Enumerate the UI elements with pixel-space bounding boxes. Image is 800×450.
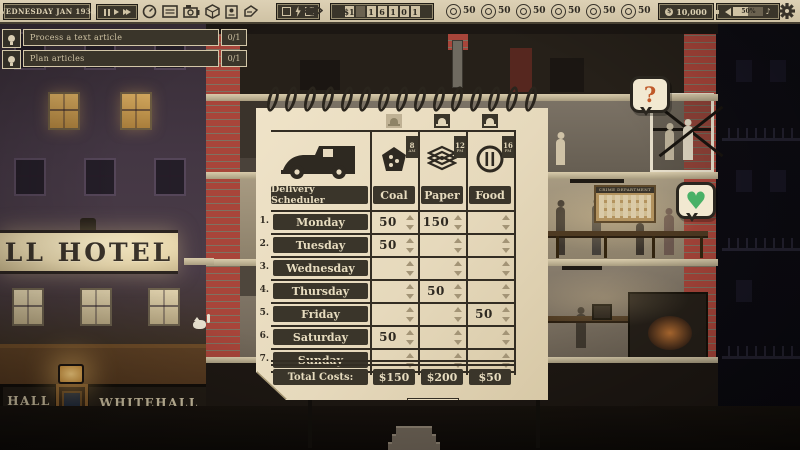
fast-forward-icon[interactable] <box>123 9 131 15</box>
typewriter <box>592 304 612 320</box>
hotel-sign-text: LL HOTEL <box>5 238 174 267</box>
circulation-counter: $1 1 6 1 0 1 <box>330 3 434 20</box>
fire-escape-rail <box>722 356 800 359</box>
camera-icon[interactable] <box>183 4 200 18</box>
paper-cell: 150 <box>418 213 466 232</box>
row-number: 5. <box>257 308 269 318</box>
task-row[interactable]: Plan articles 0/1 <box>2 50 247 69</box>
quantity-stepper[interactable] <box>405 215 414 230</box>
stat-value: 50 <box>463 6 476 16</box>
stepper-down-icon[interactable] <box>502 294 510 299</box>
stepper-down-icon[interactable] <box>406 248 414 253</box>
desk-leg <box>556 236 559 258</box>
delivery-ampm: AM <box>409 149 416 153</box>
stepper-up-icon[interactable] <box>406 330 414 335</box>
cell-value: 150 <box>422 215 450 229</box>
spiral-binding <box>268 86 536 120</box>
stat-item: 50 <box>446 4 478 19</box>
stepper-up-icon[interactable] <box>502 330 510 335</box>
stat-value: 50 <box>498 6 511 16</box>
coal-cell: 50 <box>370 328 418 347</box>
money-display: $ 10,000 <box>658 3 714 20</box>
crime-department-board: CRIME DEPARTMENT <box>594 185 656 223</box>
id-card-icon[interactable] <box>225 4 238 19</box>
package-icon[interactable] <box>205 4 220 19</box>
quantity-stepper[interactable] <box>501 307 510 322</box>
money-icon: $ <box>665 8 673 16</box>
table-top-rule <box>271 130 516 132</box>
header-labels-row: Delivery Scheduler Coal Paper Food <box>271 186 516 205</box>
quantity-stepper[interactable] <box>453 330 462 345</box>
binding-ring <box>357 85 374 113</box>
food-cell <box>466 213 514 232</box>
person-in-elevator <box>665 130 674 160</box>
desk-leg <box>604 236 607 258</box>
printing-press <box>628 292 708 360</box>
stepper-up-icon[interactable] <box>454 353 462 358</box>
row-number: 1. <box>257 216 269 226</box>
task-progress: 0/1 <box>221 50 247 67</box>
binding-ring <box>375 85 392 113</box>
task-label[interactable]: Process a text article <box>23 29 219 46</box>
stepper-down-icon[interactable] <box>454 271 462 276</box>
stepper-down-icon[interactable] <box>454 225 462 230</box>
dark-building <box>716 0 800 450</box>
vent-pipe <box>452 40 463 88</box>
stepper-up-icon[interactable] <box>406 284 414 289</box>
counter-digit: 1 <box>411 6 420 17</box>
paper-delivery-time-badge: 12 PM <box>454 136 466 158</box>
stat-item: 50 <box>551 4 583 19</box>
stepper-up-icon[interactable] <box>454 238 462 243</box>
delivery-truck-icon <box>279 138 357 180</box>
hotel-window-lit <box>80 288 112 326</box>
stepper-down-icon[interactable] <box>406 317 414 322</box>
delivery-ampm: PM <box>505 149 512 153</box>
task-row[interactable]: Process a text article 0/1 <box>2 29 247 48</box>
row-number: 4. <box>257 285 269 295</box>
counter-prefix: $1 <box>345 6 354 17</box>
cell-value: 50 <box>374 238 402 252</box>
row-number: 3. <box>257 262 269 272</box>
demographic-stats: 50 50 50 50 50 50 <box>446 2 653 20</box>
header-icons-row: 8 AM 12 PM 16 PM <box>271 134 516 184</box>
stepper-down-icon[interactable] <box>454 294 462 299</box>
scheduler-title: Delivery Scheduler <box>271 186 368 204</box>
food-column-header: Food <box>469 186 511 204</box>
binding-ring <box>412 85 429 113</box>
delivery-ampm: PM <box>457 149 464 153</box>
delivery-scheduler-panel: 8 AM 12 PM 16 PM Delivery Scheduler C <box>256 86 550 402</box>
sign-lamp <box>80 218 96 230</box>
food-total: $50 <box>469 369 511 385</box>
heart-icon: ♥ <box>685 189 707 213</box>
ceiling-lamp <box>570 179 624 183</box>
stat-item: 50 <box>586 4 618 19</box>
quantity-stepper[interactable] <box>453 307 462 322</box>
lightning-icon <box>294 6 302 17</box>
lightbulb-icon <box>2 29 21 48</box>
quantity-stepper[interactable] <box>501 238 510 253</box>
task-list: Process a text article 0/1 Plan articles… <box>2 29 247 71</box>
row-number: 2. <box>257 239 269 249</box>
stepper-up-icon[interactable] <box>406 261 414 266</box>
hotel-window-lit <box>120 92 152 130</box>
day-label: Tuesday <box>273 237 368 253</box>
table-row-wednesday: 3. Wednesday <box>271 258 516 281</box>
crime-board-title: CRIME DEPARTMENT <box>596 187 654 193</box>
task-progress: 0/1 <box>221 29 247 46</box>
coal-column-header: Coal <box>373 186 415 204</box>
paper-cell <box>418 328 466 347</box>
desk-leg <box>652 236 655 258</box>
binding-ring <box>265 85 282 113</box>
volume-bar[interactable]: 50% <box>733 7 763 16</box>
counter-digit: 1 <box>389 6 398 17</box>
stepper-down-icon[interactable] <box>502 340 510 345</box>
food-cell <box>466 282 514 301</box>
stepper-up-icon[interactable] <box>406 307 414 312</box>
gauge-icon[interactable] <box>142 4 157 19</box>
paper-column-header: Paper <box>421 186 463 204</box>
binding-ring <box>394 85 411 113</box>
stepper-up-icon[interactable] <box>454 261 462 266</box>
food-cell <box>466 328 514 347</box>
stepper-up-icon[interactable] <box>406 238 414 243</box>
coal-delivery-time-badge: 8 AM <box>406 136 418 158</box>
stat-emblem-icon <box>481 4 496 19</box>
stat-item: 50 <box>621 4 653 19</box>
quantity-stepper[interactable] <box>501 284 510 299</box>
coal-cell <box>370 282 418 301</box>
eye-icon[interactable] <box>303 4 323 17</box>
stepper-up-icon[interactable] <box>502 307 510 312</box>
binding-ring <box>486 85 503 113</box>
table-row-tuesday: 2. Tuesday 50 <box>271 235 516 258</box>
day-label: Friday <box>273 306 368 322</box>
binding-ring <box>320 85 337 113</box>
fire-escape-rail <box>722 138 800 141</box>
stepper-up-icon[interactable] <box>454 330 462 335</box>
quantity-stepper[interactable] <box>405 284 414 299</box>
quantity-stepper[interactable] <box>405 307 414 322</box>
paper-cell <box>418 236 466 255</box>
coal-total: $150 <box>373 369 415 385</box>
cat <box>193 320 206 329</box>
paper-stack-icon <box>427 145 457 173</box>
counter-digit: 1 <box>367 6 376 17</box>
dark-window <box>736 280 752 302</box>
stepper-down-icon[interactable] <box>502 225 510 230</box>
row-number: 6. <box>257 331 269 341</box>
cafe-door-lamp <box>58 364 84 384</box>
scheduler-rows: 1. Monday 50 150 2. Tuesday 50 <box>271 210 516 373</box>
food-delivery-time-badge: 16 PM <box>502 136 514 158</box>
table-row-monday: 1. Monday 50 150 <box>271 212 516 235</box>
stepper-up-icon[interactable] <box>502 215 510 220</box>
balcony-ledge <box>184 258 214 265</box>
binding-ring <box>301 85 318 113</box>
hotel-window <box>84 158 116 196</box>
time-controls[interactable] <box>96 4 138 20</box>
quantity-stepper[interactable] <box>405 261 414 276</box>
binding-ring <box>467 85 484 113</box>
day-label: Monday <box>273 214 368 230</box>
quantity-stepper[interactable] <box>453 261 462 276</box>
stat-value: 50 <box>568 6 581 16</box>
task-label[interactable]: Plan articles <box>23 50 219 67</box>
counter-digit: 6 <box>378 6 387 17</box>
desk-leg <box>700 236 703 258</box>
day-label: Saturday <box>273 329 368 345</box>
stepper-up-icon[interactable] <box>406 353 414 358</box>
person <box>636 223 644 255</box>
stat-emblem-icon <box>621 4 636 19</box>
day-label: Wednesday <box>273 260 368 276</box>
stepper-down-icon[interactable] <box>406 225 414 230</box>
date-display: WEDNESDAY JAN 1938 <box>3 3 91 20</box>
coal-cell: 50 <box>370 213 418 232</box>
stepper-down-icon[interactable] <box>454 317 462 322</box>
stepper-down-icon[interactable] <box>502 248 510 253</box>
question-mark-icon: ? <box>644 82 656 107</box>
totals-label: Total Costs: <box>273 369 368 385</box>
day-label: Thursday <box>273 283 368 299</box>
coal-cell <box>370 305 418 324</box>
play-icon[interactable] <box>114 9 119 15</box>
stat-item: 50 <box>516 4 548 19</box>
stat-emblem-icon <box>586 4 601 19</box>
binding-ring <box>449 85 466 113</box>
meter-icon <box>282 7 291 16</box>
quantity-stepper[interactable] <box>405 330 414 345</box>
quantity-stepper[interactable] <box>501 215 510 230</box>
cell-value: 50 <box>470 307 498 321</box>
coal-icon <box>380 146 408 172</box>
lightbulb-icon <box>2 50 21 69</box>
stepper-up-icon[interactable] <box>502 353 510 358</box>
hotel-window <box>154 158 186 196</box>
paper-total: $200 <box>421 369 463 385</box>
speaker-icon <box>725 8 731 16</box>
paper-cell <box>418 305 466 324</box>
stepper-down-icon[interactable] <box>454 340 462 345</box>
quantity-stepper[interactable] <box>501 261 510 276</box>
stepper-down-icon[interactable] <box>502 271 510 276</box>
binding-ring <box>338 85 355 113</box>
stat-item: 50 <box>481 4 513 19</box>
stat-emblem-icon <box>446 4 461 19</box>
stepper-up-icon[interactable] <box>454 307 462 312</box>
stepper-up-icon[interactable] <box>502 284 510 289</box>
hotel-window-lit <box>148 288 180 326</box>
stepper-down-icon[interactable] <box>406 340 414 345</box>
quantity-stepper[interactable] <box>453 238 462 253</box>
food-cell <box>466 236 514 255</box>
cabinet <box>550 58 584 92</box>
stepper-up-icon[interactable] <box>454 215 462 220</box>
cell-value: 50 <box>374 330 402 344</box>
top-bar: WEDNESDAY JAN 1938 $1 1 6 1 0 <box>0 0 800 24</box>
coal-cell <box>370 259 418 278</box>
binding-ring <box>504 85 521 113</box>
stepper-up-icon[interactable] <box>502 238 510 243</box>
pause-icon[interactable] <box>104 9 110 16</box>
table-row-friday: 5. Friday 50 <box>271 304 516 327</box>
hotel-window <box>14 158 46 196</box>
quantity-stepper[interactable] <box>453 215 462 230</box>
stat-emblem-icon <box>516 4 531 19</box>
quantity-stepper[interactable] <box>405 238 414 253</box>
stepper-up-icon[interactable] <box>454 284 462 289</box>
paper-cell <box>418 259 466 278</box>
cell-value: 50 <box>374 215 402 229</box>
counter-digit: 0 <box>400 6 409 17</box>
food-icon <box>476 145 504 173</box>
toolbar-icons <box>142 3 259 19</box>
ceiling-lamp <box>562 266 602 270</box>
stat-emblem-icon <box>551 4 566 19</box>
notepad-paper: 8 AM 12 PM 16 PM Delivery Scheduler C <box>256 108 548 400</box>
stepper-down-icon[interactable] <box>406 294 414 299</box>
pinned-papers <box>599 195 651 218</box>
game-screen: LL HOTEL HALL CAFÉ WHITEHALL GRAND · CAF… <box>0 0 800 450</box>
person <box>556 139 565 165</box>
row-number: 7. <box>257 354 269 364</box>
dark-window <box>736 170 752 192</box>
dark-window <box>736 60 752 82</box>
stepper-down-icon[interactable] <box>406 271 414 276</box>
stat-value: 50 <box>638 6 651 16</box>
stair-step <box>396 426 432 436</box>
dark-window <box>770 170 786 192</box>
stat-value: 50 <box>533 6 546 16</box>
scheduler-table: 8 AM 12 PM 16 PM Delivery Scheduler C <box>271 130 516 378</box>
coal-cell: 50 <box>370 236 418 255</box>
binding-ring <box>430 85 447 113</box>
heart-bubble[interactable]: ♥ <box>676 182 716 219</box>
person-in-elevator <box>683 126 693 160</box>
totals-row: Total Costs: $150 $200 $50 <box>271 360 516 386</box>
question-bubble[interactable]: ? <box>630 76 670 113</box>
food-cell: 50 <box>466 305 514 324</box>
press-icon[interactable] <box>243 4 259 18</box>
counter-cell-empty <box>356 6 365 17</box>
binding-ring <box>283 85 300 113</box>
hotel-window-lit <box>48 92 80 130</box>
table-row-thursday: 4. Thursday 50 <box>271 281 516 304</box>
settings-gear-icon[interactable] <box>779 3 795 19</box>
hotel-window-lit <box>12 288 44 326</box>
hotel-sign: LL HOTEL <box>0 230 178 274</box>
stepper-up-icon[interactable] <box>502 261 510 266</box>
volume-percent: 50% <box>733 7 763 16</box>
food-cell <box>466 259 514 278</box>
money-value: 10,000 <box>676 7 707 17</box>
quantity-stepper[interactable] <box>501 330 510 345</box>
table-row-saturday: 6. Saturday 50 <box>271 327 516 350</box>
volume-control[interactable]: 50% ♪ <box>716 3 780 20</box>
long-desk <box>546 231 708 238</box>
stepper-up-icon[interactable] <box>406 215 414 220</box>
dark-window <box>770 60 786 82</box>
cell-value: 50 <box>422 284 450 298</box>
brick-pillar-left <box>206 22 240 412</box>
stepper-down-icon[interactable] <box>454 248 462 253</box>
document-icon[interactable] <box>162 5 178 18</box>
paper-cell: 50 <box>418 282 466 301</box>
music-note-icon[interactable]: ♪ <box>765 8 770 16</box>
quantity-stepper[interactable] <box>453 284 462 299</box>
elevator-bar <box>653 128 711 131</box>
fire-escape-rail <box>722 248 800 251</box>
stat-value: 50 <box>603 6 616 16</box>
stepper-down-icon[interactable] <box>502 317 510 322</box>
